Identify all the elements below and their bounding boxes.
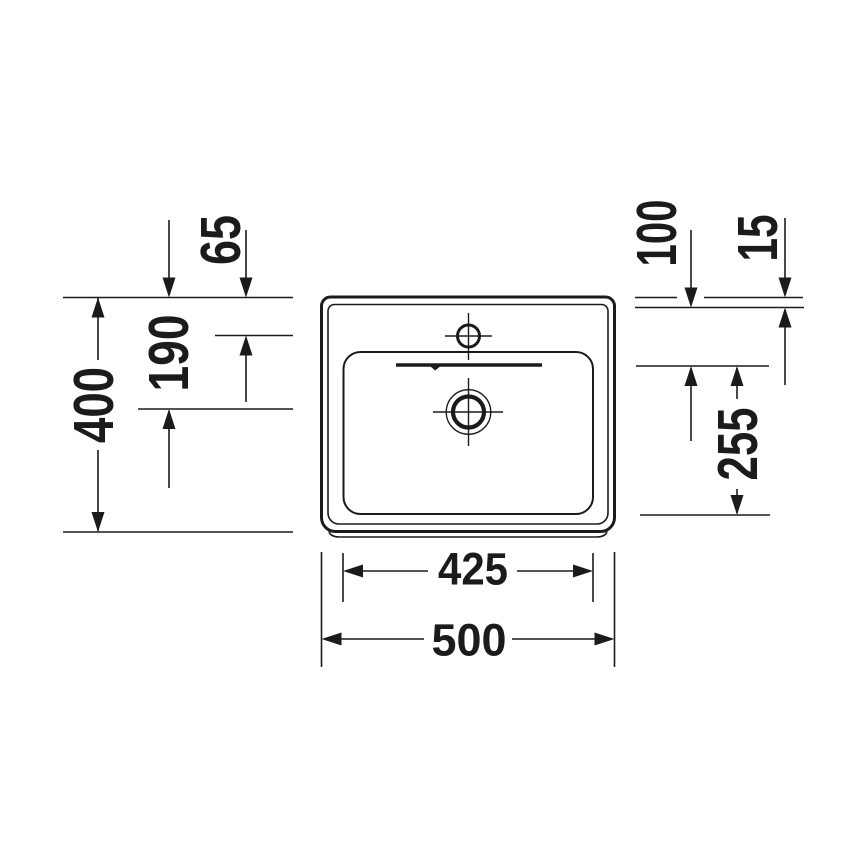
dim-500-arrow-right: [595, 633, 615, 646]
dim-400-arrow-down: [92, 512, 105, 532]
dim-label-15: 15: [726, 215, 790, 262]
dim-label-100: 100: [625, 200, 689, 267]
dim-500-arrow-left: [322, 633, 342, 646]
dim-label-500: 500: [432, 615, 507, 666]
dim-100-arrow-up: [685, 366, 698, 386]
dim-425-arrow-left: [343, 565, 363, 578]
dim-15-arrow-down: [779, 278, 792, 298]
dim-65-arrow-up: [240, 336, 253, 356]
dim-label-425: 425: [438, 544, 508, 595]
dimensions-bottom: 425 500: [322, 544, 615, 668]
dim-65-arrow-down: [240, 278, 253, 298]
dim-label-65: 65: [189, 215, 253, 265]
basin-plan-view: [322, 297, 615, 537]
dim-190-arrow-up: [163, 409, 176, 429]
dim-425-arrow-right: [573, 565, 593, 578]
technical-drawing-page: 400 190 65 100 15: [0, 0, 868, 868]
dimensions-right: 100 15 255: [625, 200, 804, 516]
dim-190-arrow-down: [163, 278, 176, 298]
dim-label-190: 190: [137, 315, 201, 392]
dim-100-arrow-down: [685, 288, 698, 308]
dim-255-arrow-down: [731, 495, 744, 515]
dim-label-255: 255: [706, 408, 770, 481]
dim-15-arrow-up: [779, 308, 792, 328]
dim-400-arrow-up: [92, 298, 105, 318]
dimensions-left: 400 190 65: [62, 215, 293, 532]
dim-label-400: 400: [62, 367, 126, 443]
washbasin-dimension-drawing: 400 190 65 100 15: [0, 0, 868, 868]
overflow-tick: [431, 367, 441, 371]
